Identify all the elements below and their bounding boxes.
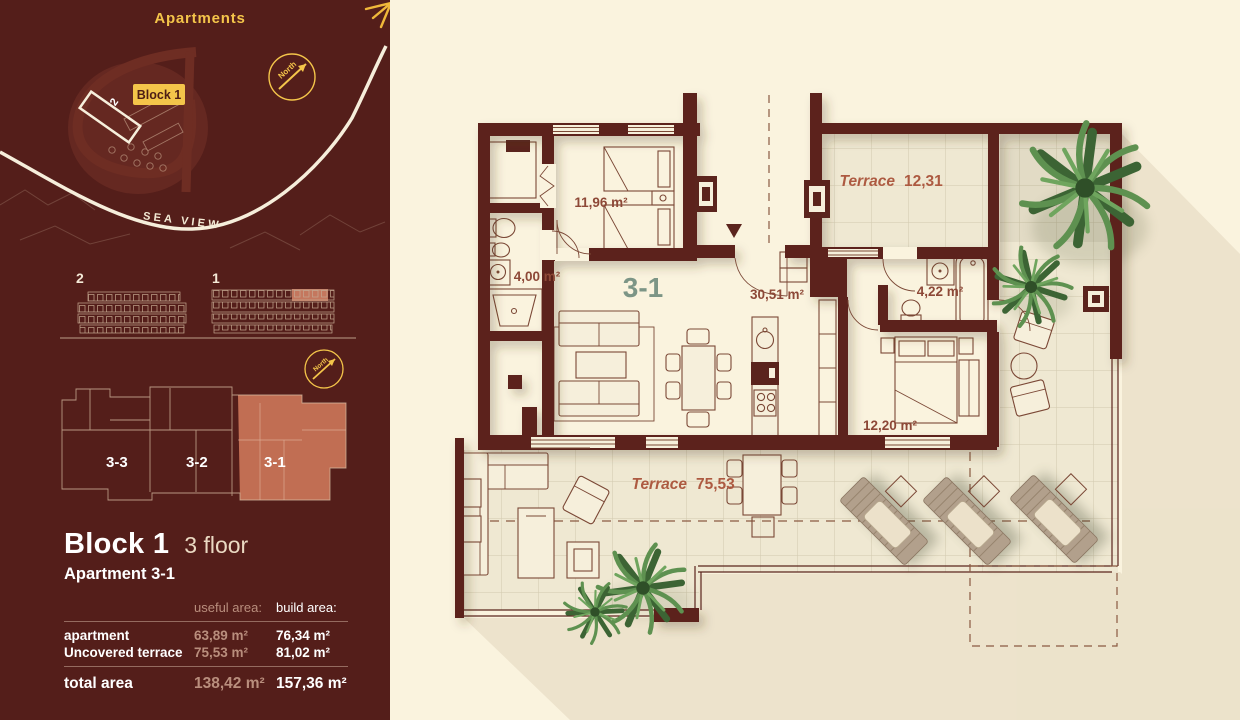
terrace-upper-area: 12,31 [904, 173, 943, 190]
sliding-door [531, 437, 615, 448]
divider [64, 666, 348, 667]
block-1-badge: Block 1 [133, 84, 185, 105]
unit-label-3-2: 3-2 [186, 454, 208, 471]
floor-overview: 3-3 3-2 3-1 [62, 387, 346, 500]
floor-plan-area: 11,96 m² 4,00 m² 3-1 30,51 m² 4,22 m² 12… [390, 0, 1240, 720]
build-value: 76,34 m² [276, 627, 348, 644]
road [186, 52, 190, 192]
terrace-upper-label: Terrace [840, 173, 896, 190]
window [828, 249, 878, 257]
col-header-useful: useful area: [194, 599, 276, 616]
col-header-build: build area: [276, 599, 348, 616]
window [885, 437, 950, 448]
outdoor-table [518, 508, 554, 578]
wall-break [540, 164, 556, 208]
room-label-bedroom-1: 11,96 m² [574, 195, 628, 210]
building-elevations: 2 1 [60, 270, 356, 388]
unit-label-3-3: 3-3 [106, 454, 128, 471]
door-gap [883, 247, 917, 259]
row-label: Uncovered terrace [64, 644, 194, 661]
north-label: North [276, 60, 298, 81]
useful-value: 63,89 m² [194, 627, 276, 644]
build-value: 81,02 m² [276, 644, 348, 661]
terrace-main-label: Terrace [632, 476, 688, 493]
row-label: apartment [64, 627, 194, 644]
floor-label: 3 floor [184, 532, 248, 559]
elevation-building-2 [78, 292, 186, 333]
total-label: total area [64, 672, 194, 696]
room-label-living: 30,51 m² [750, 287, 805, 302]
unit-label-3-1: 3-1 [264, 454, 286, 471]
apartment-summary: Block 1 3 floor Apartment 3-1 useful are… [64, 528, 348, 696]
elevation-left-label: 2 [76, 270, 84, 286]
total-row: total area 138,42 m² 157,36 m² [64, 672, 348, 696]
table-row: Uncovered terrace 75,53 m² 81,02 m² [64, 644, 348, 661]
apartment-number: 3-1 [623, 272, 663, 303]
area-table: useful area: build area: apartment 63,89… [64, 599, 348, 696]
table-row: apartment 63,89 m² 76,34 m² [64, 627, 348, 644]
block-title: Block 1 [64, 528, 169, 561]
door-gap [540, 230, 556, 260]
pillar [804, 180, 830, 218]
dining-table [682, 346, 715, 410]
divider [64, 621, 348, 622]
total-useful: 138,42 m² [194, 672, 276, 696]
room-label-bathroom-1: 4,00 m² [514, 269, 561, 284]
room-label-bathroom-2: 4,22 m² [917, 284, 964, 299]
site-map: 2 Block 1 Apartments North [0, 3, 390, 250]
elevation-right-label: 1 [212, 270, 220, 286]
north-compass-icon: North [305, 350, 343, 388]
elevation-building-1 [212, 289, 334, 333]
useful-value: 75,53 m² [194, 644, 276, 661]
terrace-main-area: 75,53 [696, 476, 735, 493]
room-label-bedroom-2: 12,20 m² [863, 418, 918, 433]
coffee-table [576, 352, 626, 378]
total-build: 157,36 m² [276, 672, 348, 696]
window [646, 437, 678, 448]
apartment-label: Apartment 3-1 [64, 565, 348, 584]
side-table [567, 542, 599, 578]
brochure-page: 2 Block 1 Apartments North [0, 0, 1240, 720]
sun-star-icon [366, 3, 390, 29]
block-1-badge-label: Block 1 [137, 88, 182, 102]
sidebar: 2 Block 1 Apartments North [0, 0, 390, 720]
pillar [695, 176, 717, 212]
map-title: Apartments [154, 10, 245, 27]
pillar [1083, 286, 1109, 312]
floor-plan-canvas: 11,96 m² 4,00 m² 3-1 30,51 m² 4,22 m² 12… [390, 0, 1240, 720]
door-gap [555, 248, 589, 261]
north-compass-icon: North [269, 54, 315, 100]
